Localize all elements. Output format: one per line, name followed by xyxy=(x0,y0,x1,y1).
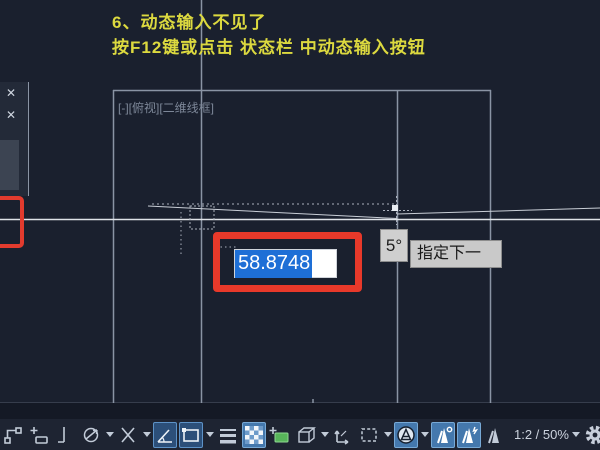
viewport-scale-dropdown[interactable] xyxy=(571,422,582,448)
annotation-scale-icon[interactable] xyxy=(483,422,507,448)
annotation-autoscale-icon[interactable] xyxy=(457,422,481,448)
annotation-monitor-dropdown[interactable] xyxy=(419,422,430,448)
customization-gear-icon[interactable] xyxy=(583,422,600,448)
status-bar: 1:2 / 50% xyxy=(0,419,600,450)
annotation-title: 6、动态输入不见了 xyxy=(112,8,266,33)
dynamic-input-field[interactable]: 58.8748 xyxy=(234,249,337,278)
selection-filter-dropdown[interactable] xyxy=(382,422,393,448)
isometric-drafting-icon[interactable] xyxy=(116,422,140,448)
object-snap-tracking-icon[interactable] xyxy=(153,422,177,448)
viewport-borders xyxy=(0,0,600,404)
dynamic-ucs-dropdown[interactable] xyxy=(319,422,330,448)
dynamic-ucs-icon[interactable] xyxy=(294,422,318,448)
drawing-lines xyxy=(0,196,600,408)
docked-palette: ✕ ✕ xyxy=(0,82,29,196)
annotation-visibility-icon[interactable] xyxy=(431,422,455,448)
isometric-drafting-dropdown[interactable] xyxy=(141,422,152,448)
polar-tracking-dropdown[interactable] xyxy=(104,422,115,448)
quick-properties-icon[interactable] xyxy=(268,422,292,448)
annotation-monitor-icon[interactable] xyxy=(394,422,418,448)
object-snap-dropdown[interactable] xyxy=(204,422,215,448)
cursor-point xyxy=(392,205,398,211)
annotation-instruction: 按F12键或点击 状态栏 中动态输入按钮 xyxy=(112,33,426,58)
object-snap-icon[interactable] xyxy=(179,422,203,448)
command-prompt-tooltip: 指定下一 xyxy=(410,240,502,268)
ortho-mode-icon[interactable] xyxy=(53,422,77,448)
red-highlight-fragment xyxy=(0,196,24,248)
polar-tracking-icon[interactable] xyxy=(79,422,103,448)
snap-mode-icon[interactable] xyxy=(1,422,25,448)
palette-block xyxy=(0,140,19,190)
dynamic-angle-box: 5° xyxy=(380,229,408,262)
selection-filter-icon[interactable] xyxy=(357,422,381,448)
ucs-axes-icon[interactable] xyxy=(331,422,355,448)
viewport-scale-value[interactable]: 1:2 / 50% xyxy=(514,427,569,442)
lineweight-icon[interactable] xyxy=(216,422,240,448)
dynamic-input-value: 58.8748 xyxy=(235,250,312,278)
application-window: 6、动态输入不见了 按F12键或点击 状态栏 中动态输入按钮 [-][俯视][二… xyxy=(0,0,600,450)
cad-canvas xyxy=(0,0,600,450)
close-icon[interactable]: ✕ xyxy=(4,86,18,100)
viewport-control-label[interactable]: [-][俯视][二维线框] xyxy=(118,99,214,116)
grid-snap-icon[interactable] xyxy=(27,422,51,448)
transparency-icon[interactable] xyxy=(242,422,266,448)
close-icon[interactable]: ✕ xyxy=(4,108,18,122)
